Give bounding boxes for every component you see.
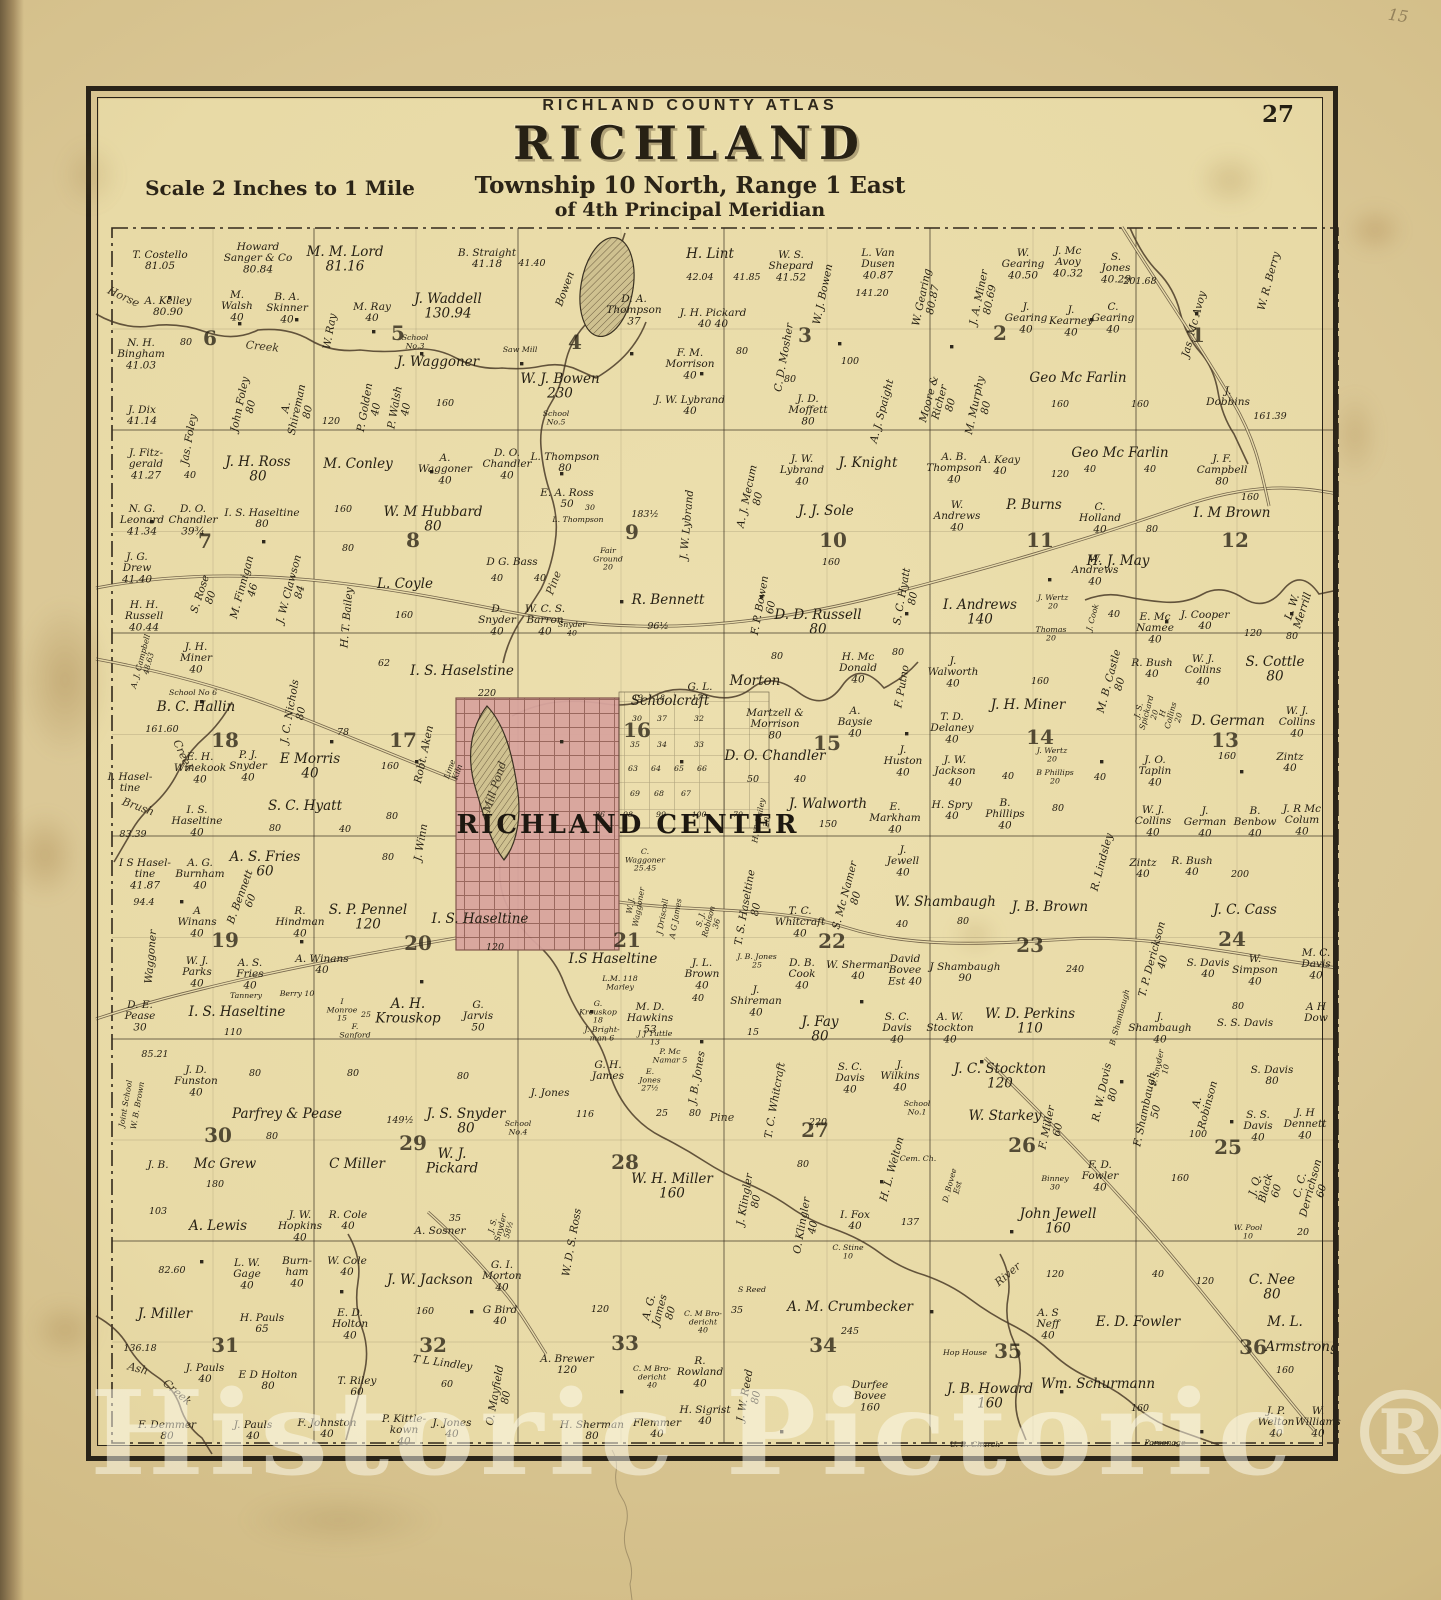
paper-crack	[612, 1450, 632, 1600]
map-frame-outer	[86, 86, 1338, 1461]
map-title: RICHLAND	[340, 116, 1040, 170]
atlas-series-title: RICHLAND COUNTY ATLAS	[340, 97, 1040, 115]
meridian-subtitle: of 4th Principal Meridian	[340, 199, 1040, 221]
page-number: 27	[1262, 101, 1294, 128]
atlas-page: T. Costello81.05HowardSanger & Co80.84M.…	[0, 0, 1441, 1600]
township-subtitle: Township 10 North, Range 1 East	[340, 172, 1040, 199]
book-binding-edge	[0, 0, 24, 1600]
scale-note: Scale 2 Inches to 1 Mile	[120, 176, 440, 200]
handwritten-corner-note: 15	[1387, 5, 1410, 27]
